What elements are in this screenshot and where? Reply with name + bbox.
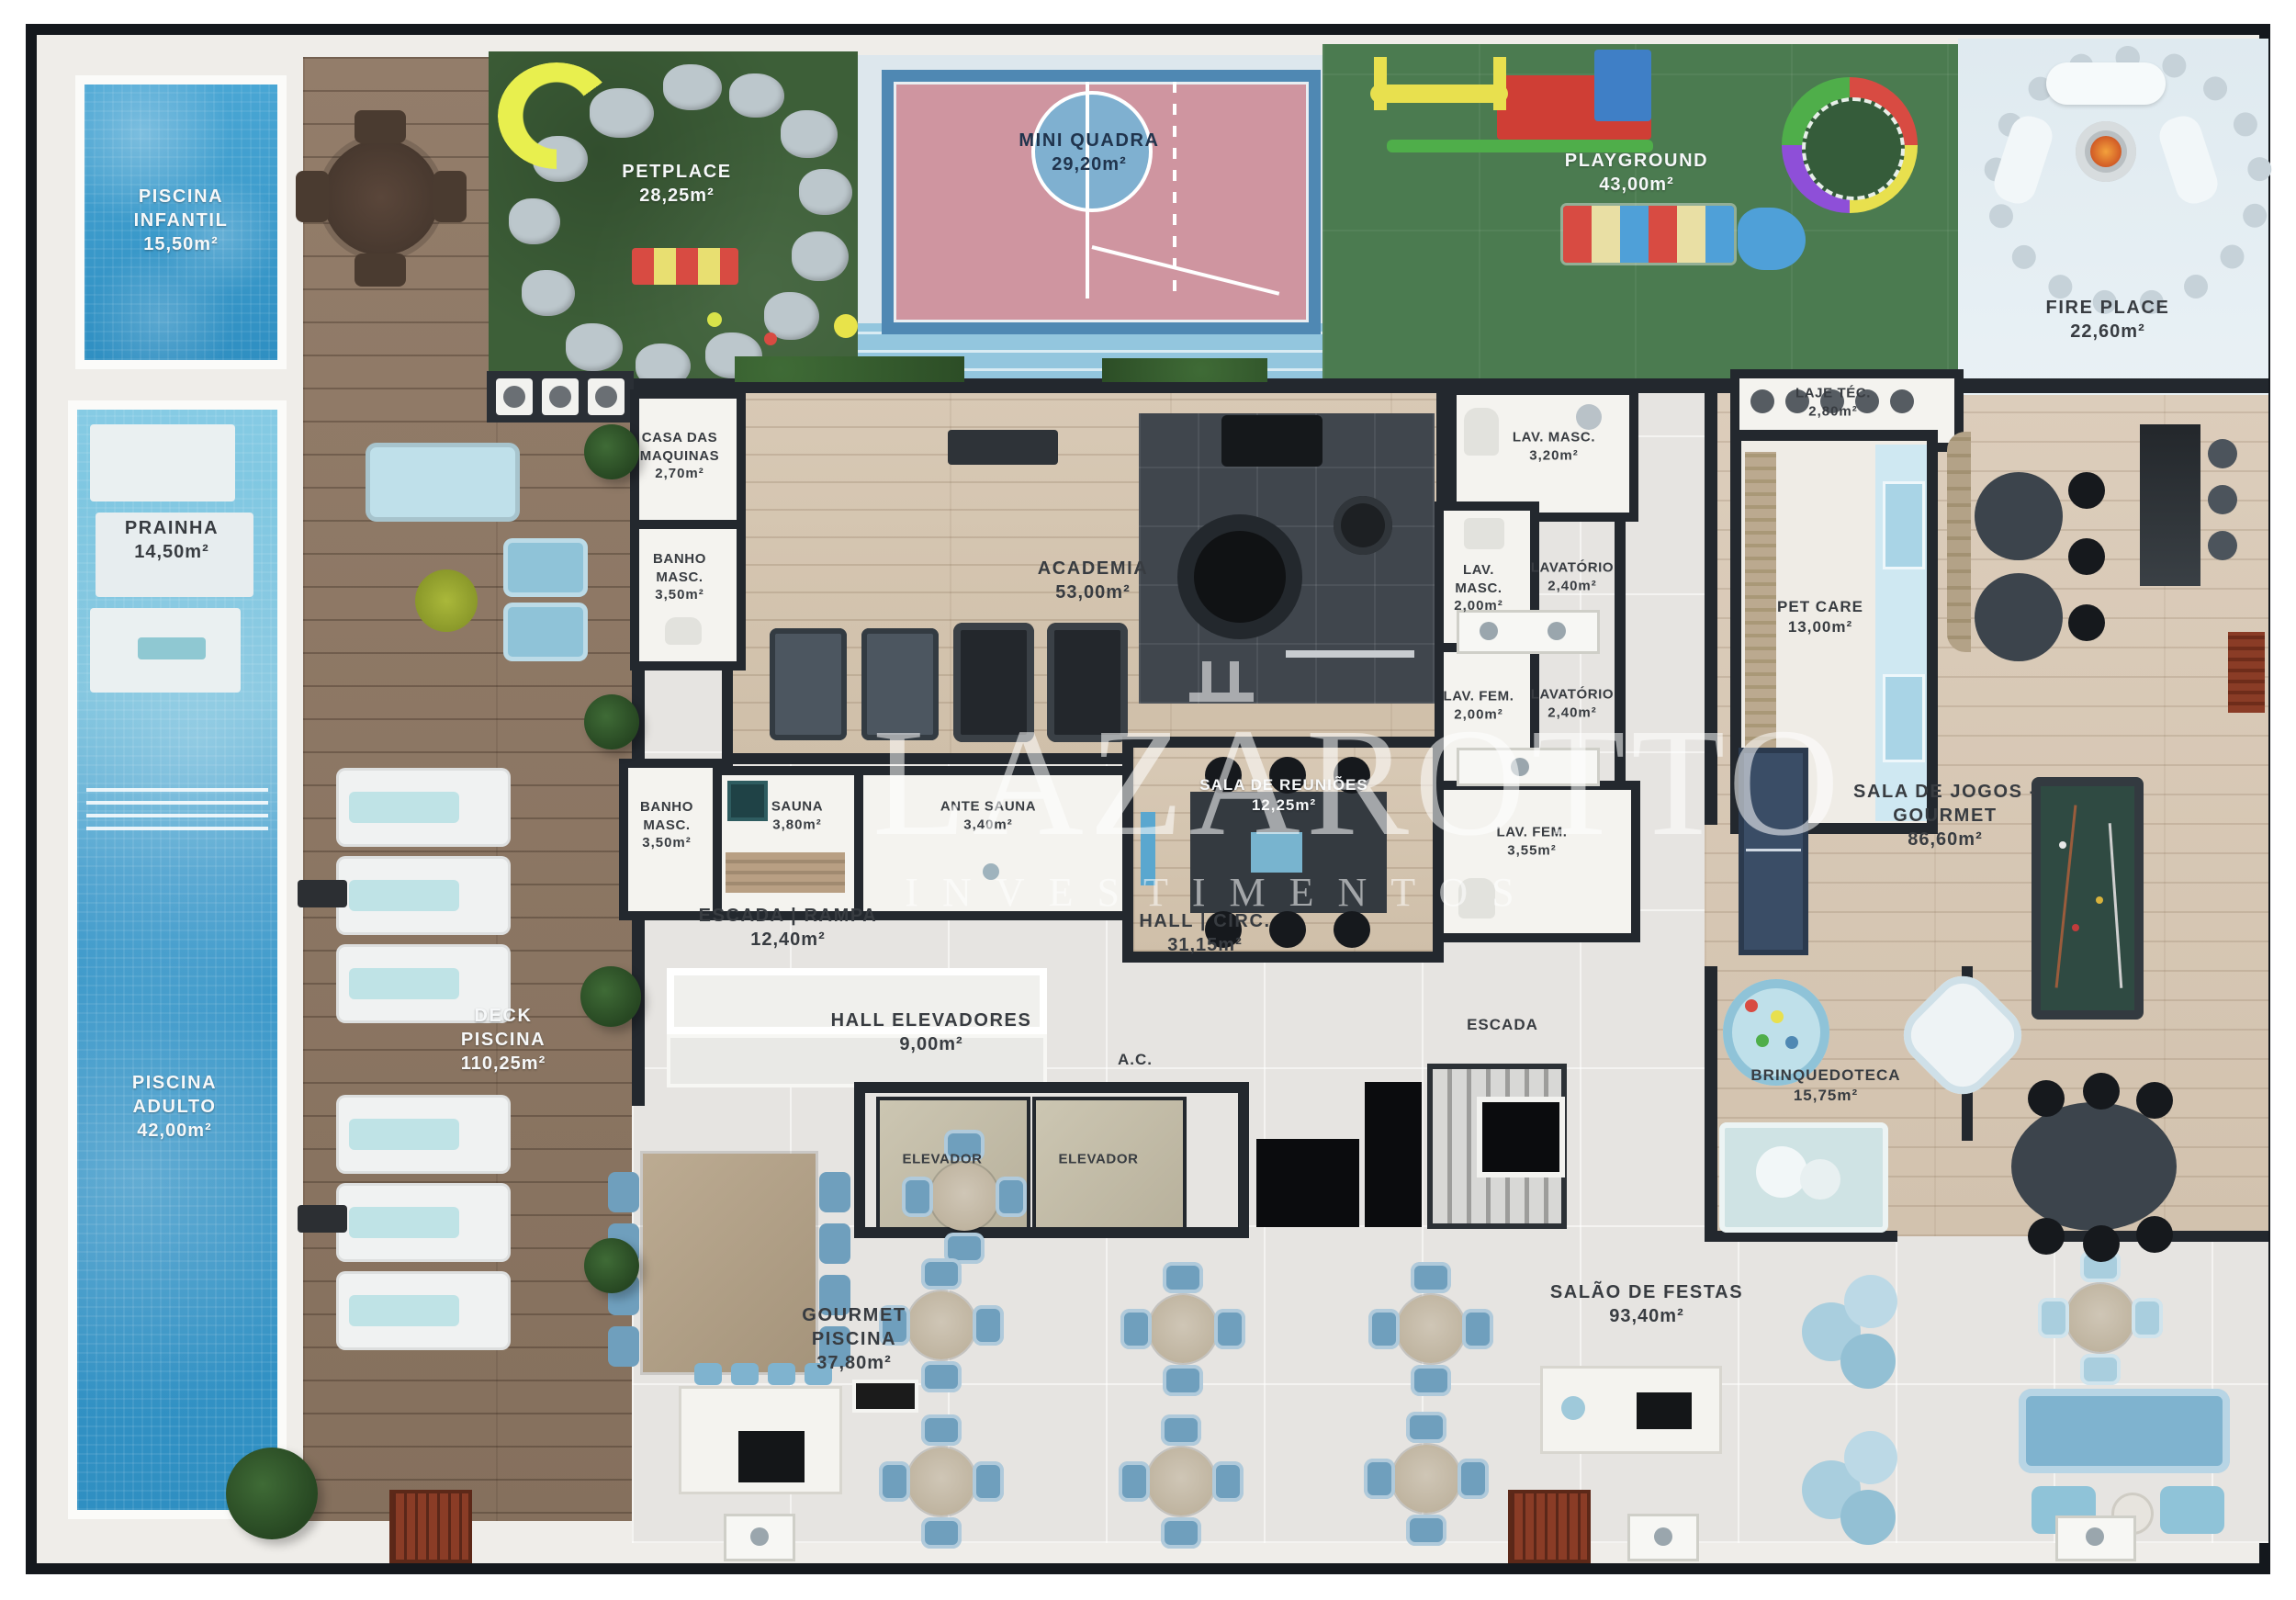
sun-lounger <box>336 768 511 847</box>
fire-pit <box>2076 121 2136 182</box>
play-slide-blue <box>1594 50 1651 121</box>
label-brinquedoteca: BRINQUEDOTECA15,75m² <box>1706 1065 1945 1106</box>
label-elevador-1: ELEVADOR <box>883 1150 1002 1168</box>
laundry-counter <box>487 371 634 423</box>
label-piscina-infantil: PISCINA INFANTIL15,50m² <box>98 185 264 256</box>
game-table <box>1739 748 1808 955</box>
deck-daybed <box>366 443 520 522</box>
grill <box>1508 1490 1591 1563</box>
sink-counter <box>1457 610 1600 654</box>
playground <box>1322 44 1958 388</box>
deck-chair <box>355 254 406 287</box>
meeting-tv <box>1141 812 1155 885</box>
deck-table <box>298 880 347 907</box>
curved-bench <box>1947 432 1971 652</box>
lounge-sofa <box>2019 1389 2230 1473</box>
lounge-armchair <box>2160 1486 2224 1534</box>
plant <box>584 694 639 749</box>
play-pond-blue <box>1738 208 1806 270</box>
bar-stool <box>694 1363 722 1385</box>
sun-lounger <box>336 1271 511 1350</box>
counter-sink <box>2055 1515 2136 1561</box>
stair-void <box>1365 1082 1422 1227</box>
room-lav-fem-2 <box>1435 781 1640 942</box>
play-rug <box>1719 1122 1888 1233</box>
label-lav-masc-320: LAV. MASC.3,20m² <box>1508 429 1600 465</box>
label-elevador-2: ELEVADOR <box>1039 1150 1158 1168</box>
treadmill <box>1047 623 1128 742</box>
pool-adulto <box>68 400 287 1519</box>
deck-chair <box>433 171 467 222</box>
toilet-icon <box>1464 408 1499 456</box>
plant <box>584 424 639 479</box>
label-banho-masc-1: BANHO MASC.3,50m² <box>638 550 721 604</box>
pet-tunnel <box>498 62 615 169</box>
label-mini-quadra: MINI QUADRA29,20m² <box>1011 129 1167 176</box>
sauna-bench <box>726 852 845 893</box>
cooktop <box>738 1431 805 1482</box>
toilet-icon <box>665 617 702 645</box>
grill <box>389 1490 472 1563</box>
label-hall-elevadores: HALL ELEVADORES9,00m² <box>803 1008 1060 1056</box>
dining-chair <box>819 1223 850 1264</box>
pool-steps <box>86 788 268 839</box>
wall <box>1705 378 1717 825</box>
buffet-island <box>1543 1369 1719 1451</box>
label-petplace: PETPLACE28,25m² <box>576 160 778 208</box>
sink-icon <box>1464 518 1504 549</box>
room-ante-sauna <box>854 766 1142 920</box>
deck-chair <box>355 110 406 143</box>
label-escada: ESCADA <box>1447 1015 1558 1035</box>
room-sauna <box>713 766 876 920</box>
label-gourmet-piscina: GOURMET PISCINA37,80m² <box>771 1303 937 1375</box>
treadmill <box>953 623 1034 742</box>
hopscotch <box>1563 206 1734 263</box>
plant <box>226 1448 318 1539</box>
round-table-set <box>2032 1249 2169 1387</box>
label-deck-piscina: DECK PISCINA110,25m² <box>430 1004 577 1076</box>
deck-round-table <box>323 140 439 255</box>
counter-sink <box>724 1514 795 1561</box>
label-lavatorio-2: LAVATÓRIO2,40m² <box>1513 686 1632 722</box>
deck-side-table <box>415 569 478 632</box>
label-academia: ACADEMIA53,00m² <box>992 557 1194 604</box>
bar-stool <box>731 1363 759 1385</box>
sun-lounger <box>336 1095 511 1174</box>
label-salao-festas: SALÃO DE FESTAS93,40m² <box>1546 1280 1748 1328</box>
label-hall-circ: HALL | CIRC.31,15m² <box>1113 909 1297 957</box>
gym-machine <box>770 628 847 740</box>
in-pool-lounger <box>90 424 235 501</box>
in-pool-lounger <box>90 608 241 693</box>
court-center-line <box>1086 82 1089 299</box>
sun-lounger <box>336 1183 511 1262</box>
label-lav-fem-355: LAV. FEM.3,55m² <box>1486 824 1578 860</box>
label-lav-fem-200: LAV. FEM.2,00m² <box>1437 688 1520 724</box>
round-table-set <box>1357 1410 1495 1548</box>
label-lav-masc-200: LAV. MASC.2,00m² <box>1437 561 1520 615</box>
deck-table <box>298 1205 347 1233</box>
court-diagonal-line <box>1092 245 1280 296</box>
label-prainha: PRAINHA14,50m² <box>98 516 245 564</box>
plant <box>584 1238 639 1293</box>
barbell <box>1286 650 1414 658</box>
wall <box>722 753 1135 764</box>
sun-lounger <box>336 856 511 935</box>
deck-chair <box>296 171 329 222</box>
sink-counter <box>1457 748 1600 786</box>
label-sala-jogos: SALA DE JOGOS - GOURMET86,60m² <box>1826 780 2065 851</box>
planter <box>735 356 964 382</box>
weight-plate <box>1334 496 1392 555</box>
cooktop <box>1637 1392 1692 1429</box>
label-casa-maquinas: CASA DAS MAQUINAS2,70m² <box>636 429 724 483</box>
play-bar-yellow <box>1370 85 1508 103</box>
label-laje-tec: LAJE TÉC.2,80m² <box>1760 385 1907 421</box>
bar-counter <box>2140 424 2200 586</box>
round-table-set <box>1114 1260 1252 1398</box>
bistro-table <box>1975 573 2063 661</box>
decor-sculpture <box>1793 1424 1912 1552</box>
floor-plan: PISCINA INFANTIL15,50m² PRAINHA14,50m² P… <box>0 0 2296 1600</box>
carousel <box>1782 77 1918 213</box>
gym-machine <box>861 628 939 740</box>
wall-oven <box>2228 632 2265 713</box>
round-table-set <box>1362 1260 1500 1398</box>
round-table-set <box>872 1413 1010 1550</box>
label-pet-care: PET CARE13,00m² <box>1761 597 1880 637</box>
counter-sink <box>1627 1514 1699 1561</box>
toilet-icon <box>1458 878 1495 918</box>
pet-hurdle <box>632 248 738 285</box>
deck-armchair <box>503 538 588 597</box>
gym-tire <box>1177 514 1302 639</box>
bistro-table <box>1975 472 2063 560</box>
label-playground: PLAYGROUND43,00m² <box>1517 149 1756 197</box>
round-table-set <box>895 1128 1033 1266</box>
label-banho-masc-2: BANHO MASC.3,50m² <box>625 798 708 852</box>
round-table-set <box>1112 1413 1250 1550</box>
fireplace-sofa <box>2046 62 2166 105</box>
mini-quadra-court <box>882 70 1321 334</box>
dining-chair <box>608 1172 639 1212</box>
gym-bench <box>1221 415 1322 467</box>
plant <box>580 966 641 1027</box>
label-lavatorio-1: LAVATÓRIO2,40m² <box>1513 559 1632 595</box>
label-ac: A.C. <box>1098 1050 1172 1070</box>
dining-chair <box>819 1172 850 1212</box>
stair-core <box>1477 1097 1565 1177</box>
meeting-laptop <box>1251 832 1302 873</box>
deck-armchair <box>503 603 588 661</box>
decor-sculpture <box>1793 1269 1912 1396</box>
label-fire-place: FIRE PLACE22,60m² <box>2016 296 2200 344</box>
pool-towel <box>138 637 206 659</box>
label-sauna: SAUNA3,80m² <box>756 798 838 834</box>
planter <box>1102 358 1267 382</box>
pet-care-tub-counter <box>1875 445 1927 821</box>
petplace <box>489 51 858 389</box>
label-sala-reunioes: SALA DE REUNIÕES12,25m² <box>1146 775 1422 816</box>
label-ante-sauna: ANTE SAUNA3,40m² <box>915 798 1062 834</box>
label-escada-rampa: ESCADA | RAMPA12,40m² <box>678 904 898 952</box>
dumbbell-rack <box>948 430 1058 465</box>
wing-dining-table <box>2011 1102 2177 1231</box>
kitchen-island <box>681 1389 839 1492</box>
ac-shaft <box>1256 1139 1359 1227</box>
label-piscina-adulto: PISCINA ADULTO42,00m² <box>106 1071 243 1143</box>
dining-chair <box>608 1326 639 1367</box>
